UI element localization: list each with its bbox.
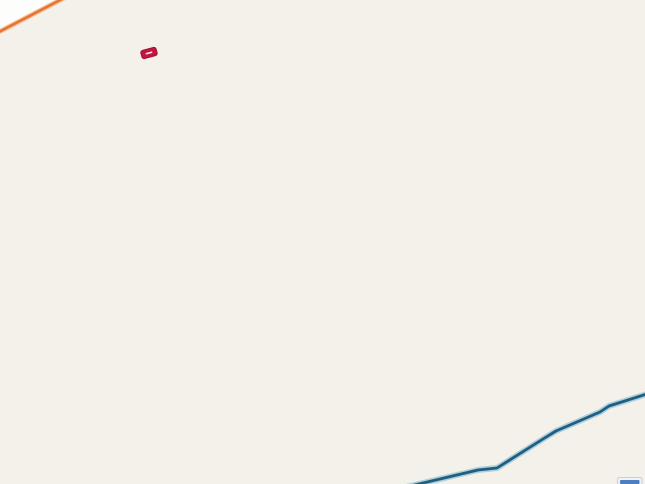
attribution-chip[interactable] [618, 478, 643, 484]
map-canvas[interactable] [0, 0, 645, 484]
map-viewport[interactable] [0, 0, 645, 484]
attribution-chip-bar [620, 480, 640, 484]
land-base [0, 0, 645, 484]
